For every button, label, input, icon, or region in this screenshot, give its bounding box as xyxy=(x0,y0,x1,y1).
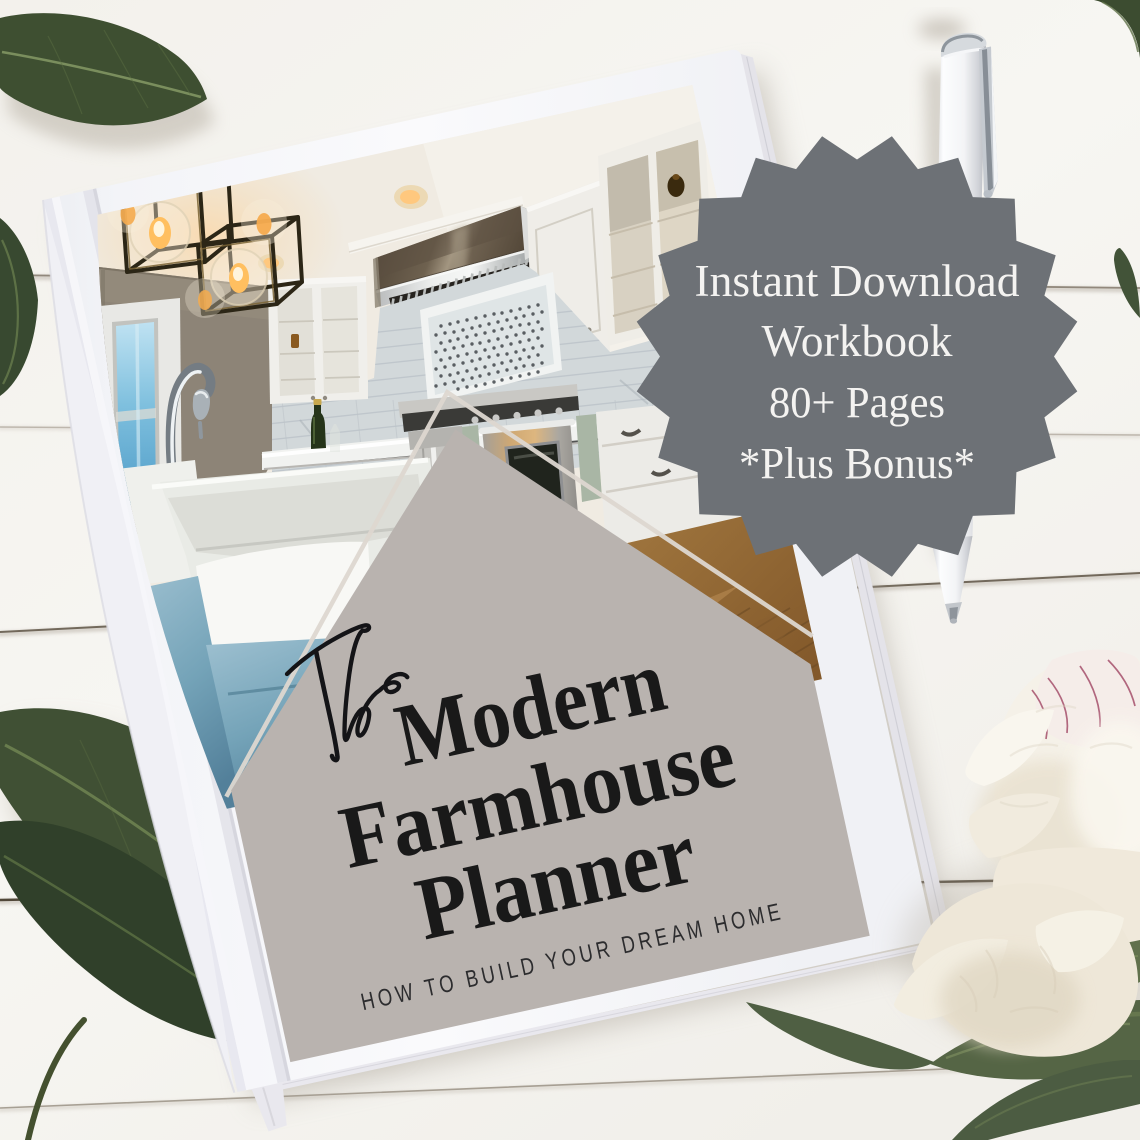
svg-text:Workbook: Workbook xyxy=(762,316,954,366)
svg-text:Instant Download: Instant Download xyxy=(695,256,1020,306)
svg-text:80+ Pages: 80+ Pages xyxy=(769,378,945,427)
svg-text:*Plus Bonus*: *Plus Bonus* xyxy=(739,439,975,488)
